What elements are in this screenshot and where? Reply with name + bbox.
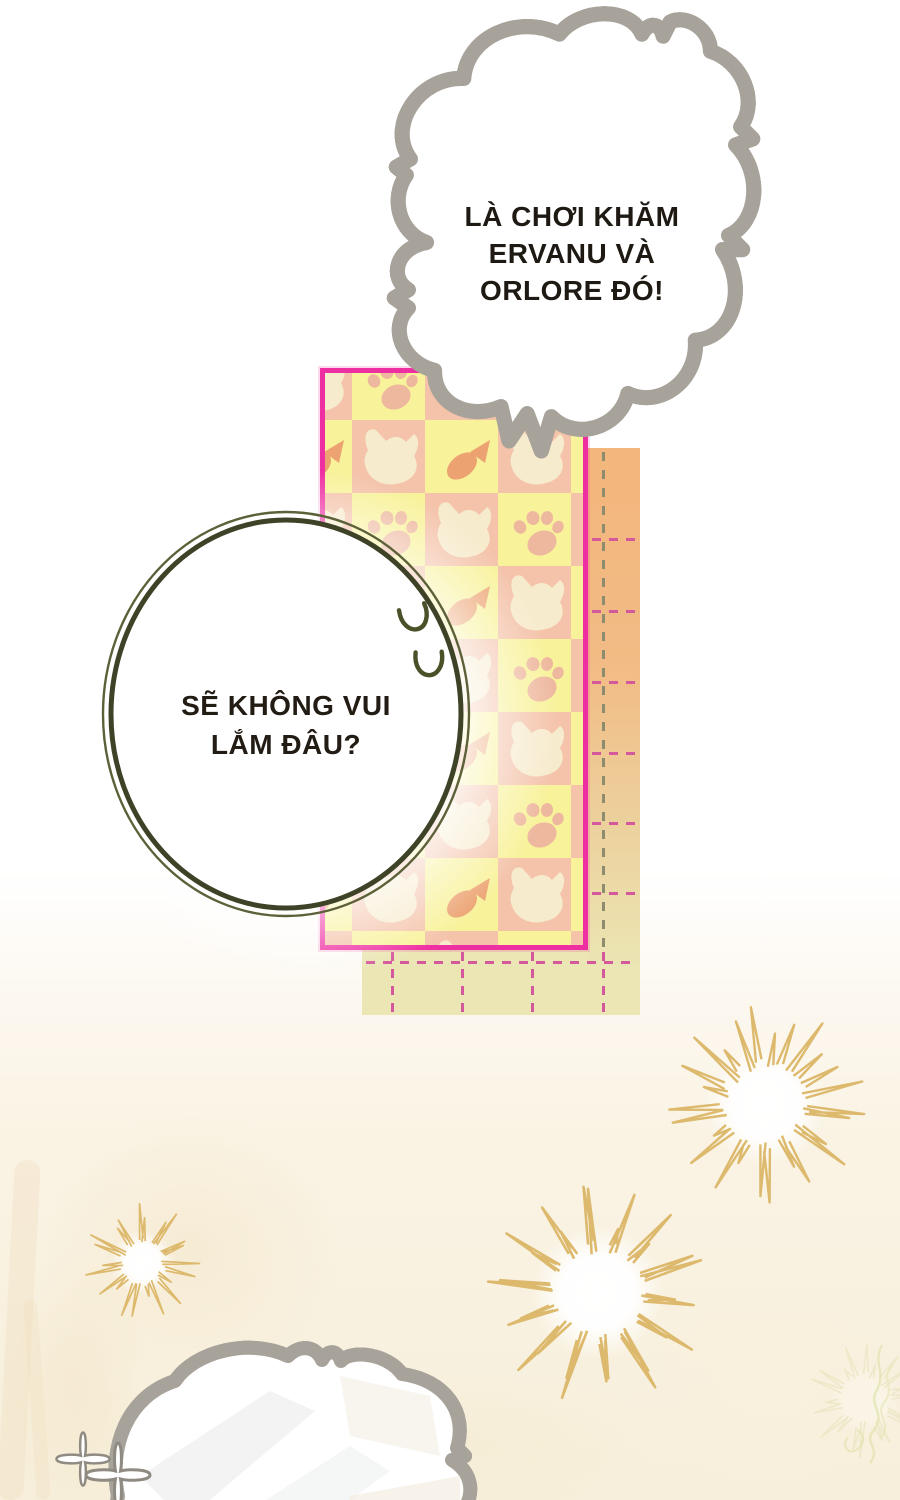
stitch-line [592, 538, 638, 541]
blanket-underlay-right [588, 448, 640, 1015]
stitch-line [592, 681, 638, 684]
cloud-outline [100, 1336, 470, 1500]
speech-bubble-round: SẼ KHÔNG VUI LẮM ĐÂU? [100, 508, 472, 920]
foliage-sketch-icon [812, 1335, 900, 1485]
thought-bubble-bottom [100, 1336, 470, 1500]
stitch-line [602, 452, 605, 948]
stitch-line [391, 952, 394, 1013]
sweat-mark-icon [410, 644, 450, 686]
stitch-line [592, 822, 638, 825]
speech-text: LÀ CHƠI KHĂM ERVANU VÀ ORLORE ĐÓ! [378, 198, 766, 309]
speech-line: SẼ KHÔNG VUI [100, 686, 472, 725]
stitch-line [531, 952, 534, 1013]
comic-page: LÀ CHƠI KHĂM ERVANU VÀ ORLORE ĐÓ! SẼ KHÔ… [0, 0, 900, 1500]
plus-sparkle-icon [83, 1440, 153, 1500]
speech-bubble-cloud: LÀ CHƠI KHĂM ERVANU VÀ ORLORE ĐÓ! [378, 6, 766, 474]
stitch-line [592, 752, 638, 755]
background-streak [23, 1300, 51, 1500]
stitch-line [592, 892, 638, 895]
stitch-line [602, 952, 605, 1013]
speech-line: LẮM ĐÂU? [100, 725, 472, 764]
speech-line: ORLORE ĐÓ! [378, 272, 766, 309]
stitch-line [461, 952, 464, 1013]
speech-text: SẼ KHÔNG VUI LẮM ĐÂU? [100, 686, 472, 764]
background-streak [0, 1160, 41, 1500]
speech-line: LÀ CHƠI KHĂM [378, 198, 766, 235]
stitch-line [592, 610, 638, 613]
starburst-icon [480, 1175, 715, 1410]
stitch-line [366, 961, 638, 964]
starburst-icon [75, 1195, 210, 1330]
blanket-underlay-bottom [362, 945, 588, 1015]
speech-line: ERVANU VÀ [378, 235, 766, 272]
